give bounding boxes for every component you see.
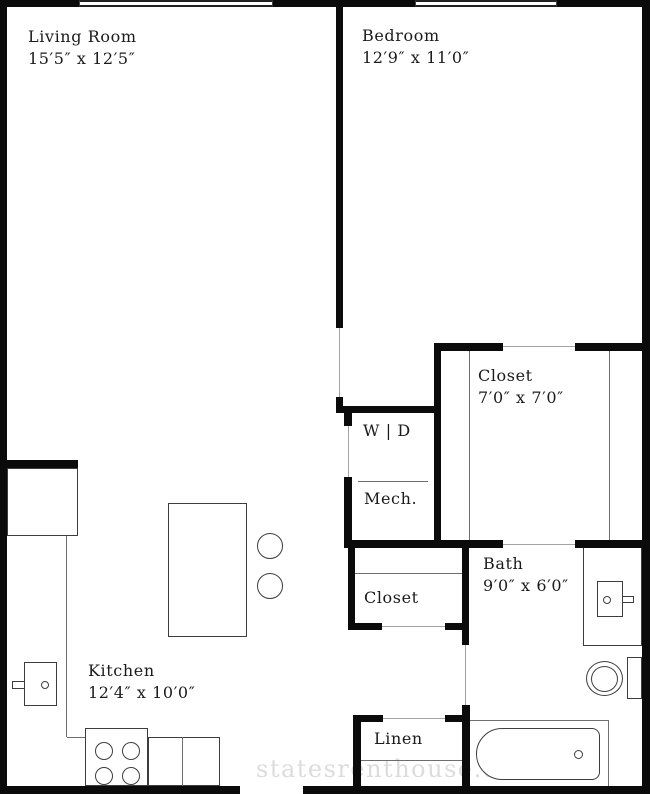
closet-door-opening-top xyxy=(503,346,575,347)
kitchen-counter-divider-line xyxy=(182,737,183,786)
kitchen-counter-right xyxy=(148,737,220,786)
bedroom-dimensions: 12′9″ x 11′0″ xyxy=(362,48,469,67)
kitchen-sink-drain xyxy=(41,681,49,689)
wall-top-middle xyxy=(273,0,415,7)
pantry-cabinet xyxy=(7,468,78,536)
wall-linen-left xyxy=(353,715,361,786)
closet-label: Closet xyxy=(478,366,533,385)
bar-stool xyxy=(257,533,283,559)
floor-plan: statesrenthouse.com xyxy=(0,0,650,794)
bath-door-opening xyxy=(465,645,466,705)
wall-top-left xyxy=(0,0,79,7)
wall-bedroom-bottom-b xyxy=(575,343,642,351)
kitchen-dimensions: 12′4″ x 10′0″ xyxy=(88,683,195,702)
linen-shelf-line xyxy=(361,760,462,761)
closet-door-opening-bottom xyxy=(503,544,575,545)
wd-door-opening xyxy=(348,426,349,477)
wall-living-bedroom-divider xyxy=(336,7,343,328)
wall-mid-horizontal-b xyxy=(575,540,642,548)
wall-kitchen-entry-stub xyxy=(0,460,78,468)
wall-wd-door-stub xyxy=(344,413,352,426)
bathtub-drain xyxy=(574,750,583,759)
bedroom-window xyxy=(415,0,557,7)
wall-mid-horizontal-a xyxy=(344,540,503,548)
wall-bedroom-bottom-a xyxy=(434,343,503,351)
closet-rod-line-left xyxy=(469,351,470,540)
bar-stool xyxy=(257,573,283,599)
tub-enclosure-line-right xyxy=(608,720,609,786)
mechanical-label: Mech. xyxy=(364,489,417,508)
stove-burner xyxy=(95,767,113,785)
linen-label: Linen xyxy=(374,729,423,748)
kitchen-label: Kitchen xyxy=(88,661,155,680)
bathroom-sink-drain xyxy=(603,596,611,604)
kitchen-island xyxy=(168,503,247,637)
wall-top-right xyxy=(557,0,650,7)
wall-bottom-left xyxy=(0,786,240,794)
bedroom-label: Bedroom xyxy=(362,26,440,45)
kitchen-counter-edge-vertical xyxy=(66,536,67,737)
hall-closet-door-opening xyxy=(382,626,445,627)
tub-enclosure-line-top xyxy=(470,720,608,721)
wall-hall-closet-left xyxy=(348,548,355,630)
bath-label: Bath xyxy=(483,554,523,573)
wall-hall-closet-bottom-a xyxy=(348,623,382,630)
wall-linen-top-b xyxy=(445,715,470,722)
wall-left xyxy=(0,0,7,794)
stove-burner xyxy=(122,767,140,785)
washer-dryer-label: W | D xyxy=(363,421,411,440)
kitchen-counter-edge-horizontal xyxy=(67,737,85,738)
toilet-bowl-inner xyxy=(591,666,618,692)
living-room-dimensions: 15′5″ x 12′5″ xyxy=(28,49,135,68)
stove-burner xyxy=(122,742,140,760)
wall-right xyxy=(642,0,650,794)
closet-rod-line-right xyxy=(609,351,610,540)
living-room-label: Living Room xyxy=(28,27,137,46)
stove-burner xyxy=(95,742,113,760)
closet-dimensions: 7′0″ x 7′0″ xyxy=(478,388,564,407)
wall-wd-left xyxy=(344,477,352,548)
living-room-window xyxy=(79,0,273,7)
linen-door-opening xyxy=(383,718,445,719)
wall-wd-top xyxy=(336,406,441,413)
wd-mech-divider-line xyxy=(358,481,428,482)
wall-bath-left-upper xyxy=(462,540,469,645)
hall-closet-label: Closet xyxy=(364,588,419,607)
hall-closet-shelf-line xyxy=(355,573,462,574)
wall-bottom-right xyxy=(303,786,650,794)
wall-closet-left xyxy=(434,343,441,548)
bedroom-door-opening xyxy=(339,328,340,397)
toilet-tank xyxy=(627,657,642,699)
bath-dimensions: 9′0″ x 6′0″ xyxy=(483,576,569,595)
